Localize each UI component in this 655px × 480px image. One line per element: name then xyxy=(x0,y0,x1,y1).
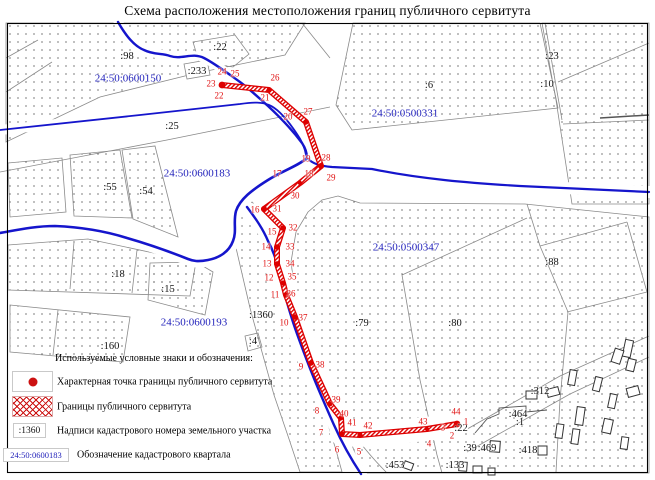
servitude-point-label: 32 xyxy=(289,224,298,233)
servitude-point-label: 25 xyxy=(231,70,240,79)
servitude-point-label: 21 xyxy=(261,94,270,103)
servitude-point-label: 37 xyxy=(299,314,308,323)
servitude-point-label: 31 xyxy=(273,205,282,214)
servitude-point-label: 41 xyxy=(348,419,357,428)
servitude-point-label: 39 xyxy=(332,396,341,405)
servitude-point-label: 29 xyxy=(327,174,336,183)
quarter-label: 24:50:0600193 xyxy=(161,318,228,329)
servitude-point-label: 2 xyxy=(450,432,455,441)
parcel-label: :1 xyxy=(516,418,524,429)
parcel-label: :22 xyxy=(213,43,226,54)
parcel-label: :453 xyxy=(386,461,405,472)
servitude-point-label: 44 xyxy=(452,408,461,417)
parcel-label: :39 xyxy=(463,444,476,455)
parcel-label: :312 xyxy=(531,387,550,398)
parcel-label: :133 xyxy=(446,461,465,472)
parcel-label: :23 xyxy=(545,52,558,63)
servitude-point-label: 23 xyxy=(207,80,216,89)
servitude-point-label: 30 xyxy=(291,192,300,201)
cadastral-scheme-page: Схема расположения местоположения границ… xyxy=(0,0,655,480)
parcel-label: :469 xyxy=(478,444,497,455)
parcel-label: :18 xyxy=(111,270,124,281)
legend-item-parcel-number: Надписи кадастрового номера земельного у… xyxy=(57,426,271,437)
servitude-point-label: 35 xyxy=(288,273,297,282)
parcel-label: :55 xyxy=(103,183,116,194)
servitude-point-label: 38 xyxy=(316,361,325,370)
servitude-point-label: 6 xyxy=(335,446,340,455)
servitude-point-label: 1 xyxy=(464,418,469,427)
servitude-point-label: 15 xyxy=(268,228,277,237)
parcel-label: :6 xyxy=(425,81,433,92)
servitude-point-label: 16 xyxy=(251,206,260,215)
parcel-label: :233 xyxy=(188,67,207,78)
servitude-point-label: 8 xyxy=(315,407,320,416)
legend-hatch-symbol xyxy=(12,396,53,417)
parcel-label: :25 xyxy=(165,122,178,133)
servitude-point-label: 19 xyxy=(302,155,311,164)
legend-title: Используемые условные знаки и обозначени… xyxy=(55,353,253,364)
servitude-point-label: 34 xyxy=(286,260,295,269)
servitude-point-label: 33 xyxy=(286,243,295,252)
parcel-label: :88 xyxy=(545,258,558,269)
legend-quarter-number-symbol: 24:50:0600183 xyxy=(3,448,69,462)
servitude-point-label: 42 xyxy=(364,422,373,431)
servitude-point-label: 28 xyxy=(322,154,331,163)
quarter-label: 24:50:0600150 xyxy=(95,74,162,85)
parcel-label: :79 xyxy=(355,319,368,330)
servitude-point-label: 11 xyxy=(271,291,280,300)
legend-parcel-number-symbol: :1360 xyxy=(13,423,46,438)
red-point-icon xyxy=(28,377,37,386)
servitude-point-label: 4 xyxy=(427,440,432,449)
parcel-label: :98 xyxy=(120,52,133,63)
parcel-label: :160 xyxy=(101,342,120,353)
parcel-label: :80 xyxy=(448,319,461,330)
servitude-point-label: 12 xyxy=(265,274,274,283)
legend-item-point: Характерная точка границы публичного сер… xyxy=(57,377,272,388)
servitude-point-label: 22 xyxy=(215,92,224,101)
parcel-label: :15 xyxy=(161,285,174,296)
servitude-point-label: 3 xyxy=(441,424,446,433)
servitude-point-label: 14 xyxy=(262,243,271,252)
servitude-point-label: 10 xyxy=(280,319,289,328)
legend-point-symbol xyxy=(12,371,53,392)
servitude-point-label: 36 xyxy=(287,290,296,299)
servitude-point-label: 13 xyxy=(263,260,272,269)
legend-item-quarter: Обозначение кадастрового квартала xyxy=(77,450,231,461)
parcel-label: :10 xyxy=(540,80,553,91)
quarter-label: 24:50:0600183 xyxy=(164,169,231,180)
servitude-point-label: 43 xyxy=(419,418,428,427)
servitude-point-label: 26 xyxy=(271,74,280,83)
parcel-label: :418 xyxy=(519,446,538,457)
servitude-point-label: 9 xyxy=(299,363,304,372)
legend-item-boundary: Границы публичного сервитута xyxy=(57,402,191,413)
servitude-point-label: 7 xyxy=(319,429,324,438)
parcel-label: :4 xyxy=(249,337,257,348)
servitude-point-label: 27 xyxy=(304,108,313,117)
servitude-point-label: 24 xyxy=(218,68,227,77)
servitude-point-label: 17 xyxy=(273,170,282,179)
servitude-point-label: 5 xyxy=(357,448,362,457)
parcel-label: :1360 xyxy=(249,311,273,322)
quarter-label: 24:50:0500331 xyxy=(372,109,439,120)
servitude-point-label: 20 xyxy=(284,113,293,122)
servitude-point-label: 18 xyxy=(305,170,314,179)
parcel-label: :54 xyxy=(139,187,152,198)
quarter-label: 24:50:0500347 xyxy=(373,243,440,254)
